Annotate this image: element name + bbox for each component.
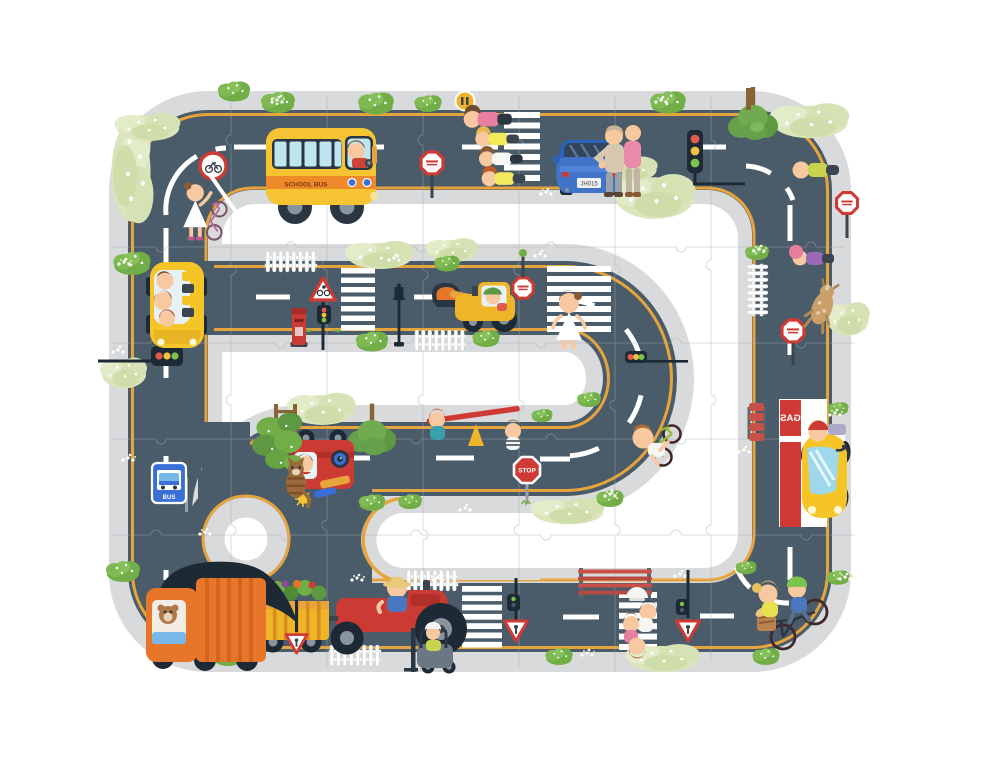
svg-text:JH015: JH015	[580, 182, 598, 188]
svg-text:BUS: BUS	[163, 495, 176, 501]
svg-text:SCHOOL BUS: SCHOOL BUS	[284, 182, 328, 189]
svg-text:GAS: GAS	[780, 413, 801, 424]
svg-text:STOP: STOP	[518, 468, 536, 475]
